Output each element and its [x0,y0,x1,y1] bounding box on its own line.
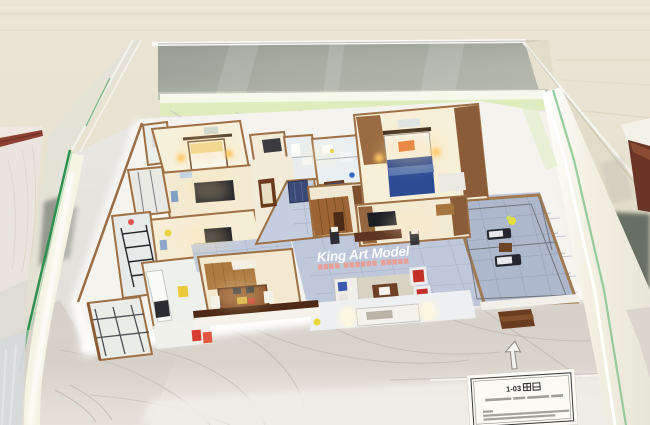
svg-text:1-03: 1-03 [506,384,522,394]
